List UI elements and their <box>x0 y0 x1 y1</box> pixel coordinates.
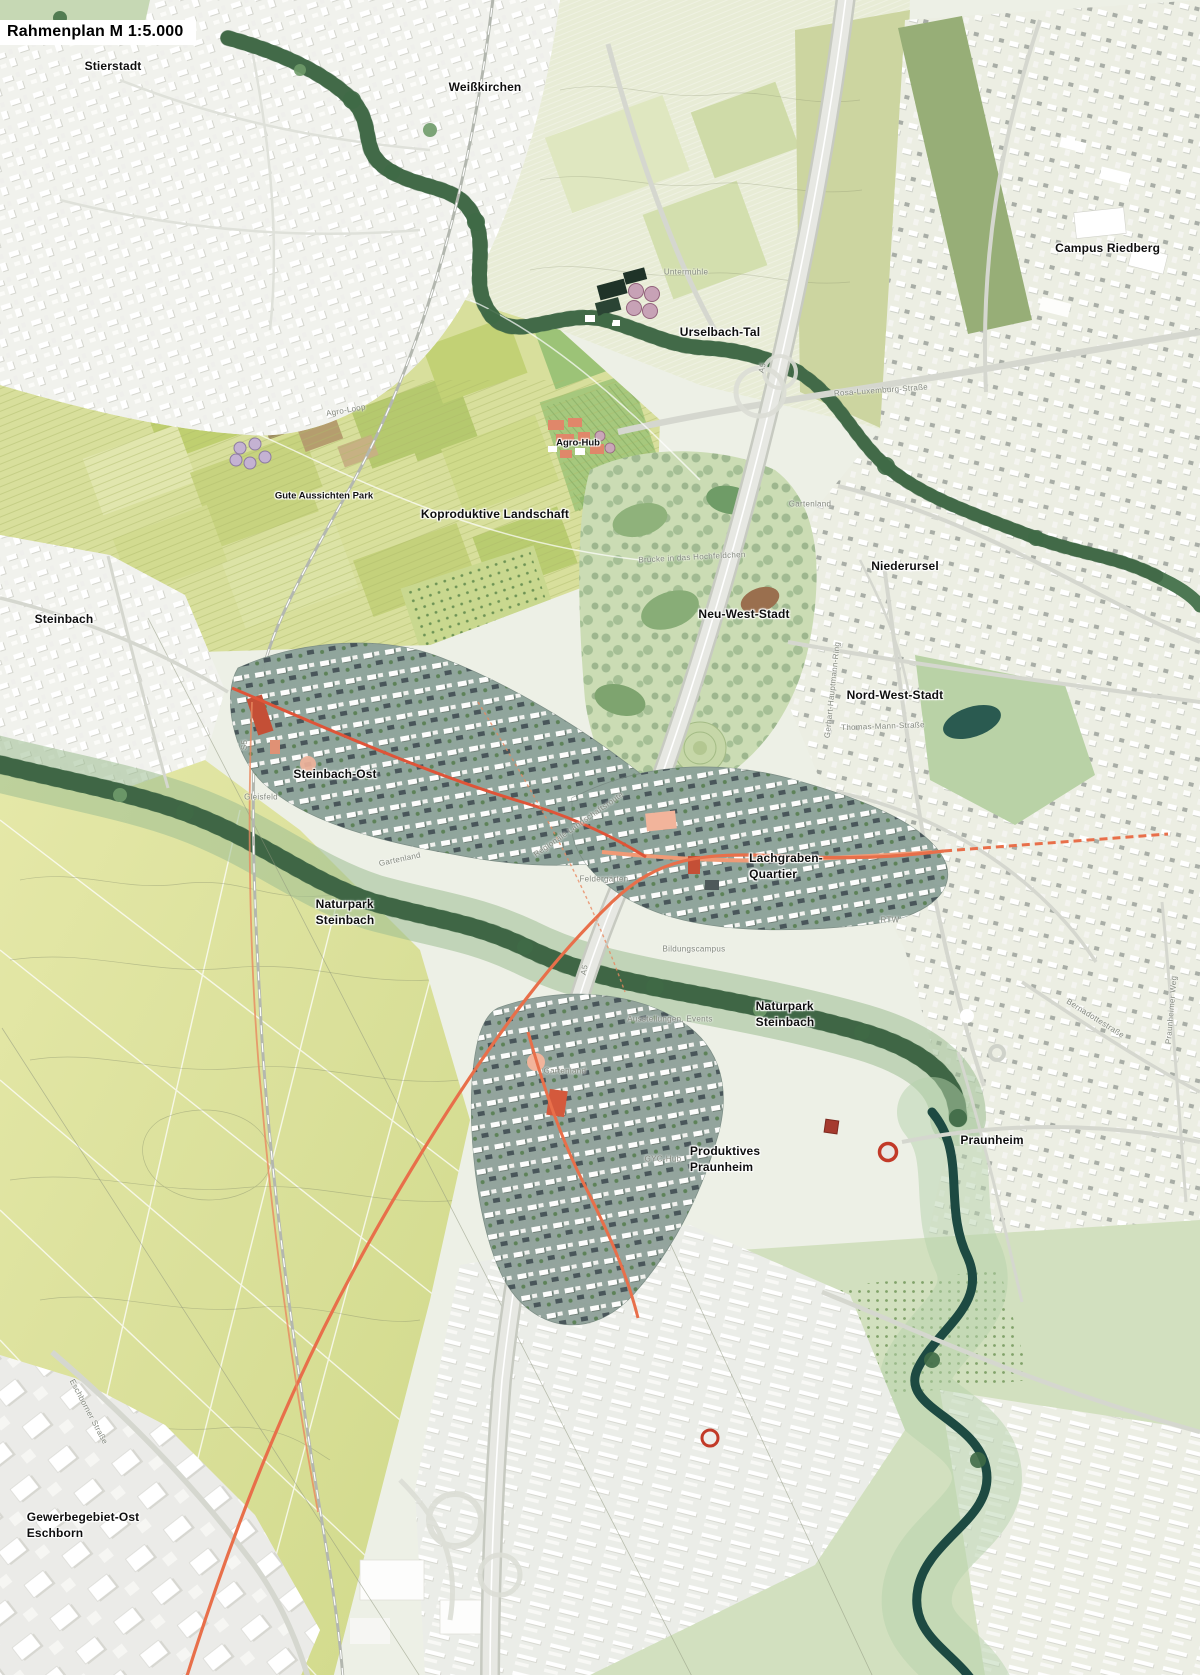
map-label-agro-hub: Agro-Hub <box>556 438 600 451</box>
map-label-naturpark-steinbach-ost: NaturparkSteinbach <box>756 999 815 1031</box>
map-label-gewerbegebiet-ost-eschborn: Gewerbegebiet-OstEschborn <box>27 1510 140 1542</box>
map-label-praunheimer-weg: Praunheimer Weg <box>1164 975 1181 1044</box>
map-label-campus-riedberg: Campus Riedberg <box>1055 241 1160 257</box>
map-label-nord-west-stadt: Nord-West-Stadt <box>847 688 944 704</box>
map-label-s5-bahn: S5 <box>240 740 251 751</box>
map-label-rosa-luxemburg-strasse: Rosa-Luxemburg-Straße <box>834 382 929 399</box>
map-label-gartenland-sued: Gartenland <box>544 1067 587 1078</box>
map-label-bruecke-hochfeldchen: Brücke in das Hochfeldchen <box>638 550 746 566</box>
map-label-urselbach-tal: Urselbach-Tal <box>680 325 760 341</box>
map-label-lachgraben-quartier: Lachgraben-Quartier <box>749 851 823 883</box>
map-label-steinbach-ost: Steinbach-Ost <box>293 767 376 783</box>
map-label-naturpark-steinbach-west: NaturparkSteinbach <box>316 897 375 929</box>
map-label-layer: StierstadtWeißkirchenCampus RiedbergUrse… <box>0 0 1200 1675</box>
map-label-neu-west-stadt: Neu-West-Stadt <box>698 607 789 623</box>
map-label-stierstadt: Stierstadt <box>85 59 142 75</box>
map-label-gyc-hub: GYC-Hub <box>645 1155 682 1166</box>
map-label-niederursel: Niederursel <box>871 559 939 575</box>
map-label-praunheim: Praunheim <box>960 1133 1023 1149</box>
map-label-steinbach: Steinbach <box>35 612 94 628</box>
plan-title-text: Rahmenplan M 1:5.000 <box>7 23 184 40</box>
plan-title: Rahmenplan M 1:5.000 <box>0 20 196 45</box>
map-label-gartenland-nord: Gartenland <box>789 500 832 511</box>
map-label-a5-sued: A5 <box>579 964 591 976</box>
map-label-gartenland-mitte: Gartenland <box>378 850 422 869</box>
map-label-agro-loop: Agro-Loop <box>325 402 366 419</box>
map-label-produktives-praunheim: ProduktivesPraunheim <box>690 1144 760 1176</box>
map-label-untermuehle: Untermühle <box>664 268 708 279</box>
map-label-weisskirchen: Weißkirchen <box>449 80 522 96</box>
map-label-feldergaerten: Feldergärten <box>579 875 628 886</box>
map-label-gleisfeld: Gleisfeld <box>244 793 278 804</box>
map-label-ausstellungen-events: Ausstellungen, Events <box>627 1015 712 1026</box>
map-label-gute-aussichten-park: Gute Aussichten Park <box>275 491 373 504</box>
map-label-a5-nord: A5 <box>757 362 770 374</box>
map-label-bernadottestrasse: Bernadottestraße <box>1064 997 1126 1041</box>
map-label-koproduktive-landschaft: Koproduktive Landschaft <box>421 507 569 523</box>
map-label-bildungscampus: Bildungscampus <box>663 945 726 956</box>
map-label-eschborner-strasse: Eschborner Straße <box>66 1378 109 1447</box>
map-label-regionale-landschaftsroute: Regionale Landschaftsroute <box>532 790 626 860</box>
masterplan-map: StierstadtWeißkirchenCampus RiedbergUrse… <box>0 0 1200 1675</box>
map-label-rtw: RTW <box>881 916 900 927</box>
map-label-thomas-mann-strasse: Thomas-Mann-Straße <box>841 720 925 733</box>
